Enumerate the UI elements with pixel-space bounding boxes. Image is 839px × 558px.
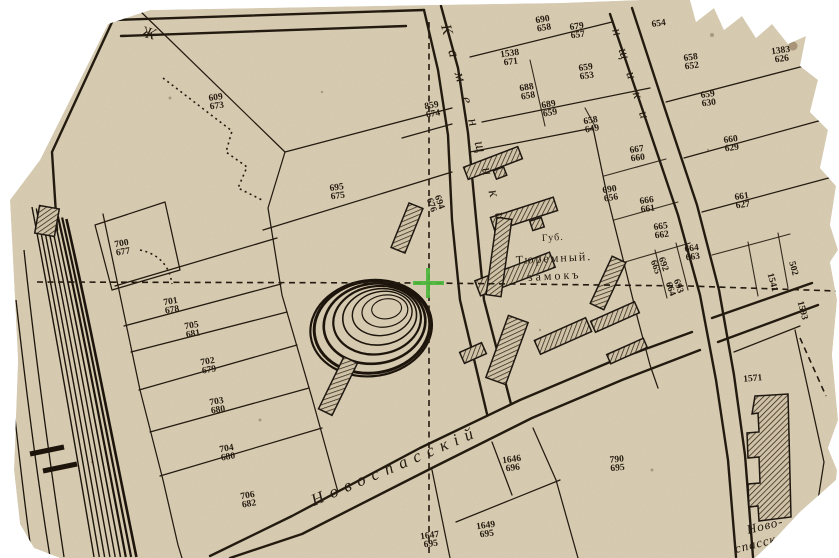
plot-number-label: 1571 [743, 373, 763, 385]
plot-number-label: 665662 [653, 221, 670, 241]
label-zamok: замокъ [527, 267, 581, 284]
historical-map-screenshot: КаменщикинщикиНовоспасскійНово-спасскГуб… [0, 0, 839, 558]
plot-number-label: 658652 [683, 52, 700, 72]
plot-number-label: 790695 [609, 454, 625, 474]
plot-number-label: 666661 [639, 195, 656, 215]
plot-number-label: 679657 [569, 21, 586, 41]
plot-number-label: 664663 [684, 243, 701, 263]
label-gub: Губ. [542, 232, 564, 244]
plot-number-label: 659653 [578, 62, 595, 82]
plot-number-label: 695675 [329, 182, 346, 202]
plot-number-label: 654 [651, 18, 667, 30]
plot-number-label: 609673 [208, 92, 225, 112]
plot-number-label: 659630 [700, 89, 717, 109]
plot-number-label: 661627 [734, 191, 751, 211]
plot-number-label: 667660 [629, 144, 646, 164]
outbuilding [35, 205, 60, 236]
plot-number-label: 660629 [723, 134, 740, 154]
map-canvas[interactable]: КаменщикинщикиНовоспасскійНово-спасскГуб… [0, 0, 839, 558]
building-1571 [747, 394, 791, 521]
